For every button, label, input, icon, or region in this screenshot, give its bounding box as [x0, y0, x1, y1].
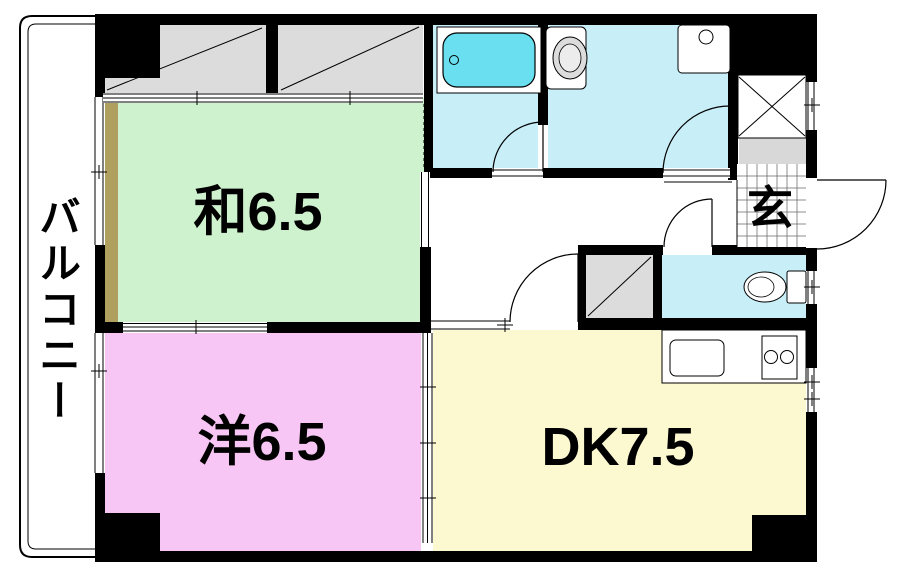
entrance-label: 玄 [747, 182, 793, 234]
wall-wet-bottom-1 [424, 168, 492, 178]
kitchen-counter [662, 330, 806, 383]
wall-step-bottom-right [752, 515, 817, 553]
western-room-label: 洋6.5 [197, 412, 326, 472]
wall-closet-divider [266, 25, 278, 93]
wall-west-b [95, 245, 105, 333]
entrance-door-arc [817, 180, 886, 249]
toilet-door-arc [664, 199, 712, 247]
toilet-icon [546, 27, 587, 89]
balcony: バルコニー [20, 16, 95, 557]
floor-plan: バルコニー [0, 0, 900, 581]
wall-toilet-left [653, 255, 662, 318]
wall-corner-top-right [738, 14, 817, 78]
wall-step-bottom-left [97, 513, 160, 553]
wall-japanese-room-right [420, 247, 431, 333]
japanese-room-label: 和6.5 [193, 182, 322, 242]
wall-corner-top-left [95, 14, 160, 78]
entrance-step [739, 138, 806, 164]
entrance-door-opening [806, 178, 817, 248]
wall-hall-dk [578, 318, 806, 330]
dk-room-label: DK7.5 [541, 417, 694, 477]
balcony-label: バルコニー [34, 195, 81, 425]
dk-door-arc [510, 254, 578, 322]
wall-toilet-top-a [578, 245, 663, 255]
washbasin-icon [678, 25, 730, 73]
wall-hall-closet-left [578, 245, 586, 330]
floor-plan-drawing: バルコニー [0, 0, 900, 581]
tatami-edge-strip [103, 98, 118, 322]
wall-top [95, 14, 817, 25]
wall-wet-bottom-2 [543, 168, 663, 178]
wall-bathroom-left [424, 25, 433, 178]
wall-bottom [95, 551, 817, 562]
bathtub-icon [437, 27, 541, 93]
toilet-second-icon [744, 271, 806, 303]
